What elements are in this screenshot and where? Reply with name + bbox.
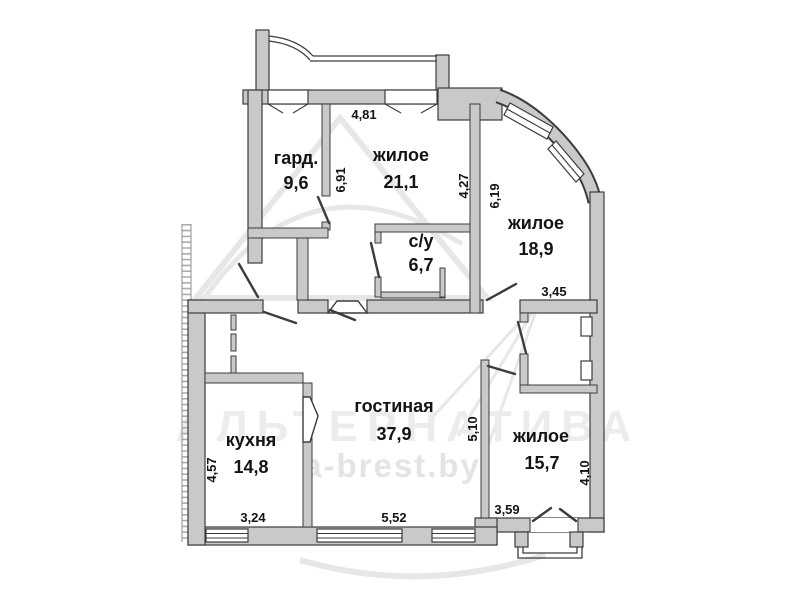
room-label-zhiloe-21: жилое <box>372 145 429 165</box>
room-area-kuhnya: 14,8 <box>233 457 268 477</box>
watermark-site-text: a-brest.by <box>303 447 481 484</box>
dim-6-91: 6,91 <box>333 167 348 192</box>
floor-plan-svg: АЛЬТЕРНАТИВА a-brest.by <box>0 0 800 599</box>
room-area-zhiloe-18: 18,9 <box>518 239 553 259</box>
top-balcony <box>256 30 449 91</box>
dim-3-45: 3,45 <box>541 284 566 299</box>
room-area-zhiloe-21: 21,1 <box>383 172 418 192</box>
dim-4-57: 4,57 <box>204 457 219 482</box>
dim-4-27: 4,27 <box>456 173 471 198</box>
dim-3-59: 3,59 <box>494 502 519 517</box>
bottom-balcony <box>515 532 583 558</box>
dim-5-10: 5,10 <box>465 416 480 441</box>
room-label-zhiloe-15: жилое <box>512 426 569 446</box>
room-label-gard: гард. <box>274 148 318 168</box>
room-label-gostinaya: гостиная <box>354 396 433 416</box>
dim-3-24: 3,24 <box>240 510 266 525</box>
room-label-zhiloe-18: жилое <box>507 213 564 233</box>
room-label-kuhnya: кухня <box>226 430 277 450</box>
dim-4-10: 4,10 <box>577 460 592 485</box>
room-area-su: 6,7 <box>408 255 433 275</box>
floor-plan-canvas: АЛЬТЕРНАТИВА a-brest.by <box>0 0 800 599</box>
room-label-su: с/у <box>408 231 433 251</box>
room-area-zhiloe-15: 15,7 <box>524 453 559 473</box>
dim-6-19: 6,19 <box>487 183 502 208</box>
room-area-gard: 9,6 <box>283 173 308 193</box>
dim-5-52: 5,52 <box>381 510 406 525</box>
room-area-gostinaya: 37,9 <box>376 424 411 444</box>
dim-4-81: 4,81 <box>351 107 376 122</box>
